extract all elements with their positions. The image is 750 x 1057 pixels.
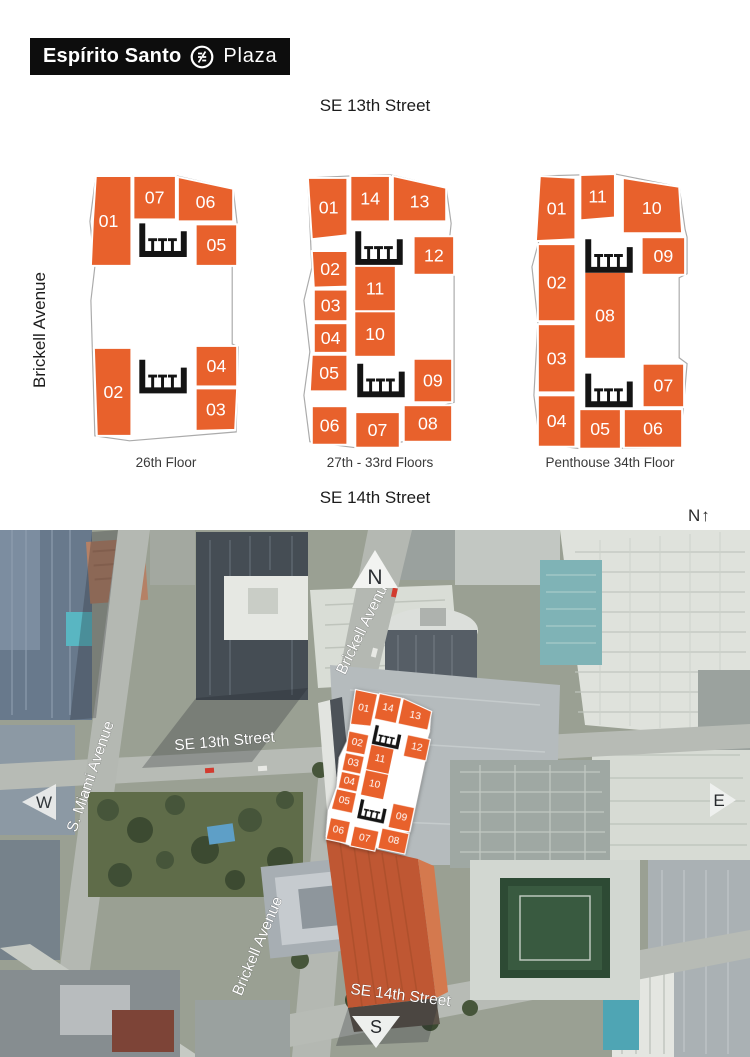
unit-label: 09 xyxy=(653,246,673,266)
unit-label: 04 xyxy=(547,411,567,431)
compass-s-label: S xyxy=(370,1017,382,1037)
unit-label: 04 xyxy=(207,356,227,376)
unit-label: 05 xyxy=(590,419,610,439)
compass-w-label: W xyxy=(36,793,52,812)
unit-label: 13 xyxy=(410,192,430,212)
floorplan-penthouse-34: 0111100902080307040506 Penthouse 34th Fl… xyxy=(526,172,694,470)
unit-label: 06 xyxy=(196,192,216,212)
unit-label: 01 xyxy=(547,199,567,219)
unit-label: 06 xyxy=(320,415,340,435)
unit-label: 02 xyxy=(320,259,340,279)
es-monogram-icon xyxy=(189,44,215,70)
unit-label: 08 xyxy=(595,305,615,325)
unit-label: 02 xyxy=(547,273,567,293)
unit-label: 03 xyxy=(547,348,567,368)
unit-label: 12 xyxy=(424,246,444,266)
floorplan-27-33: 0114130212031104100509060708 27th - 33rd… xyxy=(296,172,464,470)
compass-n-label: N xyxy=(367,566,382,589)
unit-label: 14 xyxy=(360,189,380,209)
unit-label: 06 xyxy=(643,418,663,438)
unit-label: 07 xyxy=(653,375,673,395)
espirito-santo-logo: Espírito Santo Plaza xyxy=(30,38,290,75)
compass-e-label: E xyxy=(713,791,724,810)
unit-label: 03 xyxy=(321,295,341,315)
logo-plaza: Plaza xyxy=(223,45,277,68)
unit-label: 10 xyxy=(642,198,662,218)
unit-label: 04 xyxy=(321,328,341,348)
unit-label: 07 xyxy=(145,188,165,208)
unit-label: 07 xyxy=(368,420,388,440)
floorplan-caption: 26th Floor xyxy=(82,455,250,470)
north-arrow-note: N↑ xyxy=(688,506,711,526)
unit-label: 05 xyxy=(319,363,339,383)
unit-label: 08 xyxy=(418,413,438,433)
unit-label: 11 xyxy=(366,279,385,299)
aerial-map: Brickell Avenue SE 13th Street S. Miami … xyxy=(0,530,750,1057)
unit-label: 01 xyxy=(99,211,119,231)
unit-label: 11 xyxy=(588,187,607,207)
floorplan-caption: 27th - 33rd Floors xyxy=(296,455,464,470)
brochure-page: Espírito Santo Plaza SE 13th Street Bric… xyxy=(0,0,750,1057)
unit-label: 09 xyxy=(423,371,443,391)
unit-label: 02 xyxy=(103,382,123,402)
floorplan-caption: Penthouse 34th Floor xyxy=(526,455,694,470)
unit-label: 03 xyxy=(206,399,226,419)
logo-name: Espírito Santo xyxy=(43,45,181,68)
street-label-brickell-left: Brickell Avenue xyxy=(30,272,50,388)
unit-label: 05 xyxy=(207,235,227,255)
unit-label: 10 xyxy=(365,324,385,344)
street-label-se-14th-bottom: SE 14th Street xyxy=(0,488,750,508)
floorplan-26th: 01070605020403 26th Floor xyxy=(82,172,250,470)
unit-label: 01 xyxy=(319,198,339,218)
street-label-se-13th-top: SE 13th Street xyxy=(0,96,750,116)
